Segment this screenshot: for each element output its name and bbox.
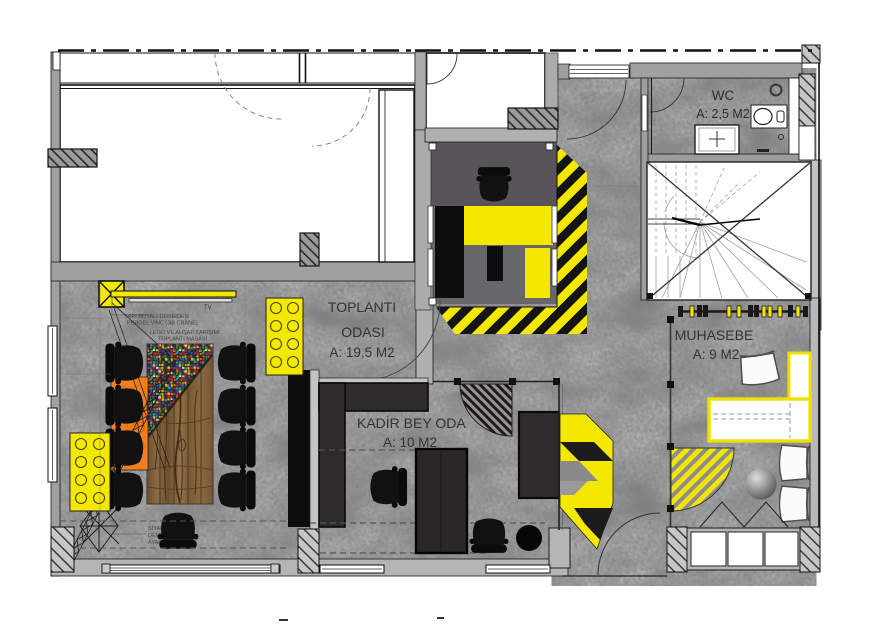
- svg-text:SARI BOYALI DEMİRDEN: SARI BOYALI DEMİRDEN: [124, 313, 189, 320]
- svg-text:LEGO VE AHŞAP KARIŞIMI: LEGO VE AHŞAP KARIŞIMI: [150, 330, 220, 336]
- svg-text:A: 19,5 M2: A: 19,5 M2: [329, 345, 394, 360]
- svg-text:TOPLANTI MASASI: TOPLANTI MASASI: [158, 337, 208, 343]
- svg-text:A: 2,5 M2: A: 2,5 M2: [696, 107, 750, 121]
- svg-text:WC: WC: [712, 88, 735, 103]
- svg-text:TV: TV: [204, 305, 212, 311]
- svg-text:TOPLANTI: TOPLANTI: [328, 299, 396, 315]
- svg-text:A: 9 M2: A: 9 M2: [693, 347, 740, 362]
- svg-text:ODASI: ODASI: [341, 324, 385, 340]
- svg-text:A: 10 M2: A: 10 M2: [383, 435, 437, 450]
- svg-text:PERGEL VİNÇ (JIB CRANE): PERGEL VİNÇ (JIB CRANE): [127, 320, 198, 327]
- svg-text:MUHASEBE: MUHASEBE: [675, 327, 754, 343]
- svg-text:KADİR BEY ODA: KADİR BEY ODA: [357, 414, 466, 431]
